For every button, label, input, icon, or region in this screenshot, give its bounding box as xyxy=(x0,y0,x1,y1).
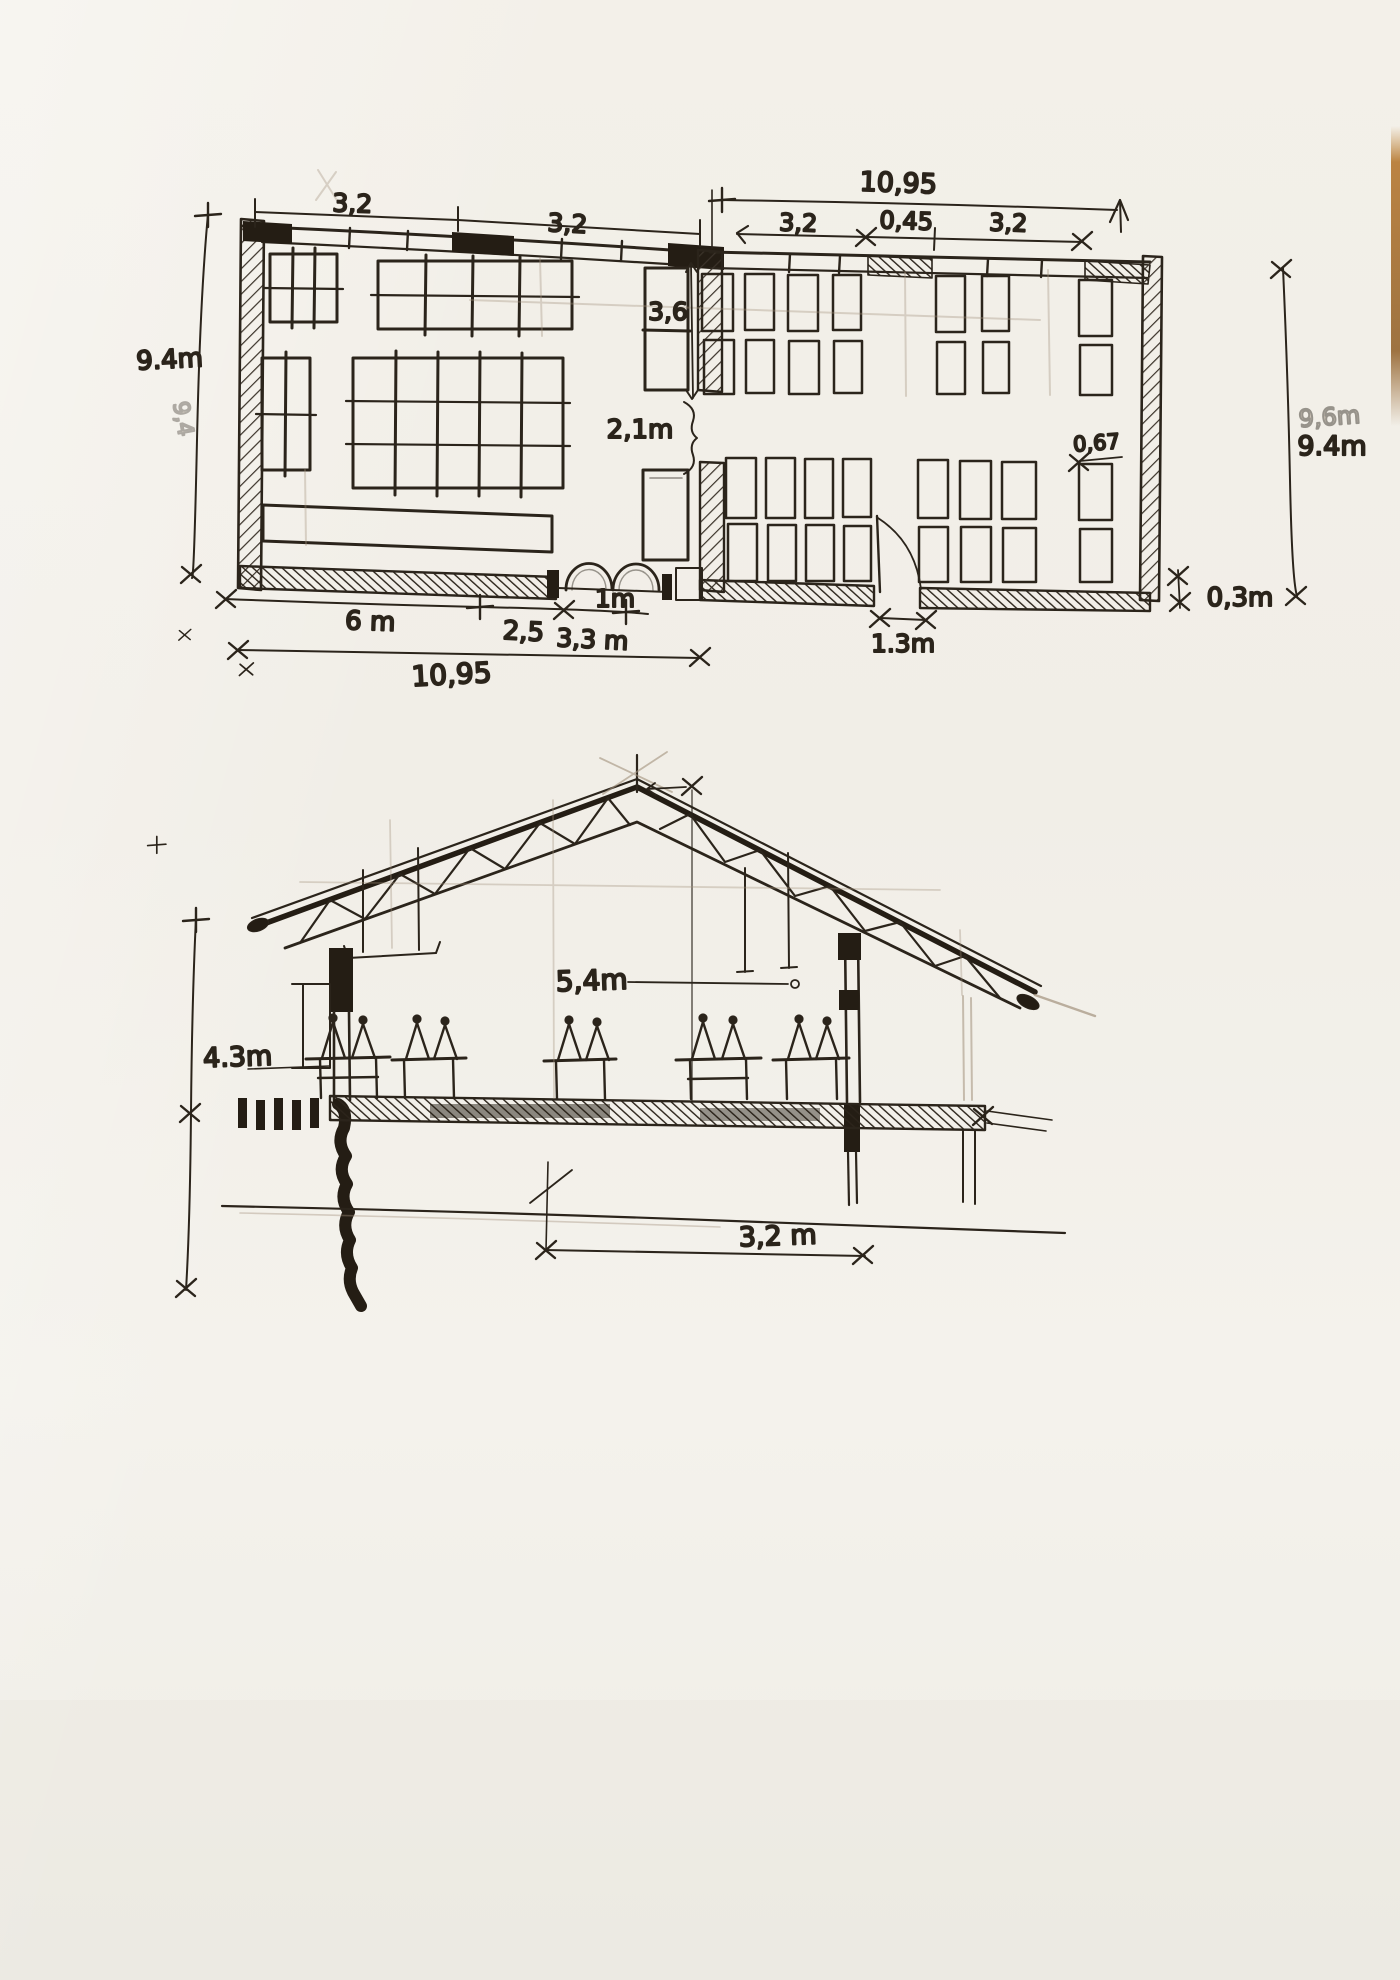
dim-bottom-d: 1m xyxy=(595,584,635,613)
dim-top-sub-c: 3,2 xyxy=(989,208,1028,237)
left-room-fixtures xyxy=(256,248,579,552)
ground-line xyxy=(148,837,1065,1234)
dim-top-left-a: 3,2 xyxy=(332,188,373,218)
window-grid-1 xyxy=(264,248,343,328)
big-window-grid xyxy=(346,351,570,497)
floor-slab xyxy=(238,1096,1052,1204)
dim-right-height: 9.4m xyxy=(1297,431,1366,462)
slab-body xyxy=(330,1096,985,1130)
bottom-wall-left xyxy=(240,566,556,599)
truss-web-right xyxy=(660,814,1000,998)
dim-top-sub-a: 3,2 xyxy=(779,208,818,237)
dim-right-height-pencil: 9,6m xyxy=(1298,401,1361,433)
dim-bottom-overall: 10,95 xyxy=(411,656,493,693)
top-pier-4 xyxy=(868,256,932,278)
truss-web-left xyxy=(300,798,630,943)
photo-page-edge xyxy=(1391,126,1400,426)
dim-bottom-a: 6 m xyxy=(345,606,396,638)
desk-row-lower-1 xyxy=(726,458,1112,520)
table-1 xyxy=(179,629,390,1098)
dim-bottom-c: 3,3 m xyxy=(556,623,629,656)
roof-truss xyxy=(246,752,1095,1100)
right-wall xyxy=(1140,256,1162,601)
lamp-1 xyxy=(239,663,440,958)
table-2 xyxy=(392,1016,466,1098)
left-column xyxy=(292,948,361,1306)
roof-overhang-pencil xyxy=(1035,995,1095,1016)
architectural-sketch: 3,2 3,2 10,95 3,2 0,45 3,2 9.4m 9,4 xyxy=(0,0,1400,1980)
dim-left-height-pencil: 9,4 xyxy=(167,399,198,438)
left-eave-end xyxy=(246,916,271,935)
desk-row-lower-2 xyxy=(728,524,1112,582)
bottom-wall-right xyxy=(920,588,1150,611)
middle-wall-lower xyxy=(700,462,724,592)
section-pencil-ghosts xyxy=(300,800,962,1098)
top-pier-2 xyxy=(452,232,514,256)
dim-ridge-height: 5,4m xyxy=(555,963,628,998)
lamp-2 xyxy=(737,853,797,972)
dim-wall: 0,3m xyxy=(1207,583,1274,613)
bottom-wall-mid xyxy=(700,580,874,606)
right-wall-pencil xyxy=(963,996,972,1100)
dim-bay-width: 3,2 m xyxy=(738,1220,817,1254)
dim-mid-opening: 2,1m xyxy=(607,415,674,445)
slab-left-dashes xyxy=(238,1098,319,1130)
table-5 xyxy=(773,1016,849,1099)
left-column-foundation xyxy=(338,1104,361,1306)
floor-plan: 3,2 3,2 10,95 3,2 0,45 3,2 9.4m 9,4 xyxy=(135,167,1366,693)
plan-single-door xyxy=(877,516,921,592)
dim-bottom-b: 2,5 xyxy=(502,616,545,648)
bottom-chord xyxy=(285,822,1020,1008)
dim-eave-height: 4.3m xyxy=(203,1041,273,1074)
dim-top-left-b: 3,2 xyxy=(547,208,588,239)
top-pier-1 xyxy=(243,221,292,244)
right-eave-end xyxy=(1015,991,1042,1013)
table-4 xyxy=(676,1015,761,1099)
dim-top-overall: 10,95 xyxy=(859,167,937,201)
desk-row-upper-1 xyxy=(702,274,1112,336)
dim-left-height: 9.4m xyxy=(135,343,203,376)
window-grid-3 xyxy=(256,352,316,476)
window-grid-2 xyxy=(371,255,579,336)
slab-end-support xyxy=(963,1131,975,1204)
dim-top-sub-b: 0,45 xyxy=(879,206,933,236)
left-wall xyxy=(238,219,264,590)
dim-door: 1.3m xyxy=(871,629,935,658)
dim-desk: 0,67 xyxy=(1072,429,1120,456)
paper-shade xyxy=(0,1700,1400,1980)
right-room-desks xyxy=(702,274,1112,582)
cross-section: 4.3m 5,4m 3,2 m xyxy=(148,629,1095,1306)
dim-mid-window: 3,6 xyxy=(648,297,688,326)
work-tables xyxy=(179,629,849,1099)
right-column xyxy=(838,933,861,1205)
sketch-page: 3,2 3,2 10,95 3,2 0,45 3,2 9.4m 9,4 xyxy=(0,0,1400,1980)
